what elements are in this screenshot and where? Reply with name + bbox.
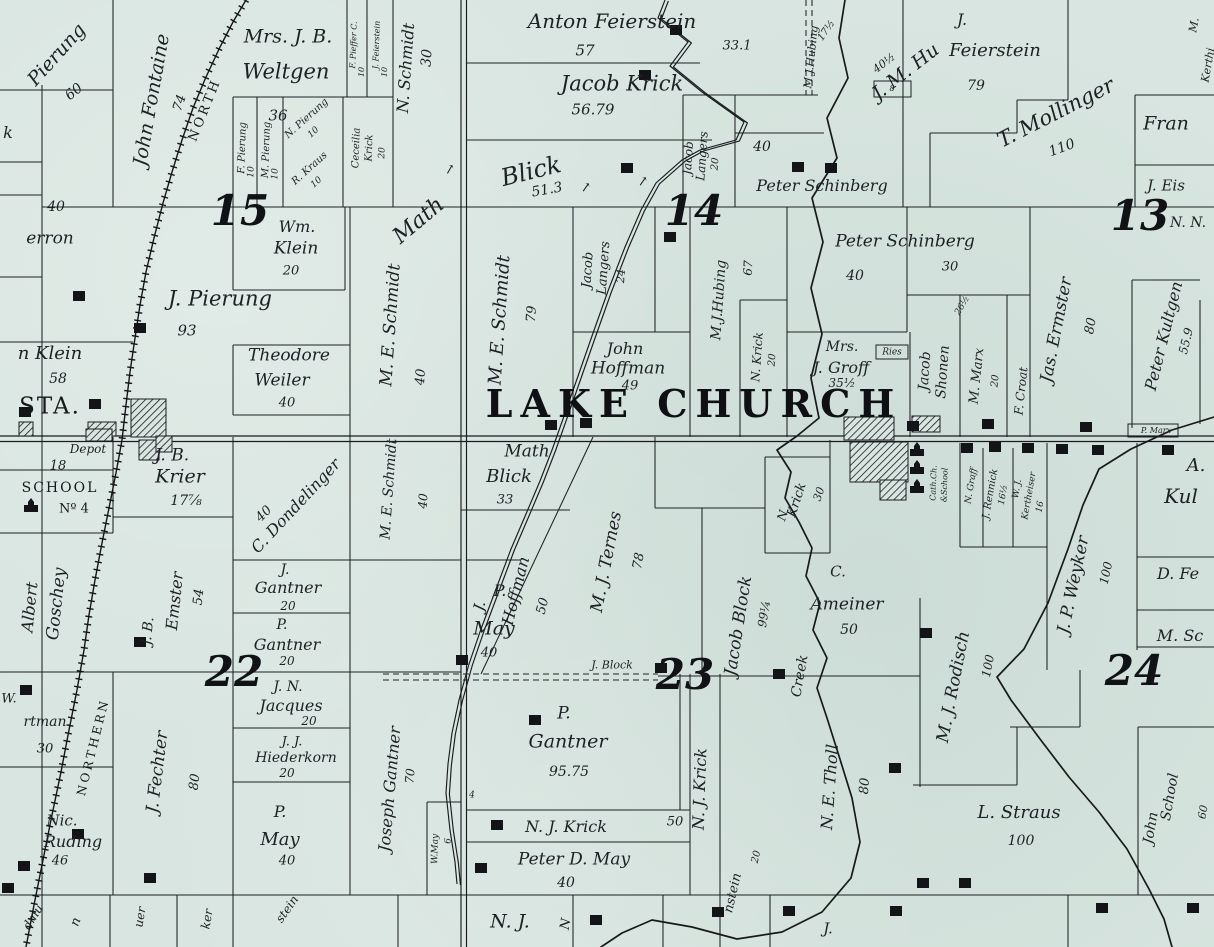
parcel-label: erron [26,231,74,248]
parcel-label: 67 [741,260,754,276]
parcel-label: T. Mollinger [994,75,1118,152]
section-number: 15 [211,190,269,232]
parcel-label: Ries [882,349,902,358]
parcel-label: John Fontaine [131,32,173,167]
map-canvas: Pierung60k40erronJohn Fontaine74NORTHMrs… [0,0,1214,947]
section-number: 13 [1111,195,1169,237]
parcel-label: Jas. Ermster [1038,276,1075,384]
parcel-label: ↗ [580,181,593,196]
parcel-label: 17⅞ [170,494,201,508]
parcel-label: 20 [751,850,764,865]
parcel-label: J. Block [591,660,633,671]
parcel-label: Mrs. [826,340,859,354]
parcel-label: P. Marx [1141,427,1171,435]
parcel-label: 100 [1098,561,1115,586]
parcel-label: 50 [667,816,684,829]
parcel-label: 26½ [954,295,972,317]
parcel-label: M. Marx [968,347,987,404]
parcel-label: Peter Schinberg [756,178,887,194]
parcel-label: 78 [631,552,647,571]
parcel-label: 60 [1196,804,1209,820]
parcel-label: N. E. Tholl [819,744,841,831]
parcel-label: 110 [1047,137,1077,159]
parcel-label: Math [504,444,549,461]
parcel-label: 40 [279,397,296,410]
parcel-label: Fran [1143,115,1189,134]
parcel-label: 58 [49,372,67,386]
parcel-label: Gantner [529,733,608,752]
place-name: LAKE CHURCH [486,385,902,423]
parcel-label: M. [1187,17,1200,33]
parcel-label: Gantner [255,580,321,596]
parcel-label: N. J. [490,913,530,932]
parcel-label: 100 [980,654,996,679]
section-number: 14 [665,190,723,232]
parcel-label: Depot [70,443,106,455]
parcel-label: N. Schmidt [395,22,417,113]
parcel-label: NORTHERN [75,697,111,797]
parcel-label: Cath.Ch. [929,465,938,501]
parcel-label: Peter Schinberg [835,234,975,251]
parcel-label: NORTH [186,77,223,144]
parcel-label: Krick [365,134,376,161]
parcel-label: 10 [381,67,389,77]
parcel-label: N. J. Krick [691,748,710,830]
parcel-label: Krick [785,481,808,519]
parcel-label: 30 [419,49,434,68]
parcel-label: 79 [967,79,985,93]
parcel-label: M. E. Schmidt [378,263,404,387]
section-number: 24 [1105,650,1163,692]
parcel-label: Ameiner [810,597,883,614]
parcel-label: Kul [1164,486,1198,506]
parcel-label: 20 [990,374,1001,388]
parcel-label: 20 [301,715,316,727]
parcel-label: 10 [247,166,256,178]
parcel-label: 20 [378,147,387,159]
parcel-label: 20 [279,655,294,667]
parcel-label: J. P. Weyker [1055,535,1092,636]
parcel-label: Shonen [934,345,952,399]
parcel-label: Weltgen [243,62,330,83]
parcel-label: 17½ [816,19,837,43]
parcel-label: n Klein [18,345,83,363]
parcel-label: 40 [416,493,429,509]
parcel-label: 10 [358,67,366,77]
parcel-label: 40 [753,140,771,154]
parcel-label: Hoffman [591,361,665,378]
parcel-label: 93 [177,324,196,339]
parcel-label: M. Sc [1157,628,1203,644]
parcel-label: 80 [1083,317,1099,336]
parcel-label: Ruding [44,834,102,850]
parcel-label: Jacob Block [723,575,756,677]
parcel-label: M. E. Schmidt [378,438,399,540]
parcel-label: J. [281,563,290,577]
parcel-label: Creek [789,654,810,698]
parcel-label: 40 [279,855,296,868]
parcel-label: M. E. Schmidt [486,255,513,386]
parcel-label: Hiederkorn [255,751,337,765]
parcel-label: N. Graff [964,467,979,504]
parcel-label: C. [830,565,846,580]
parcel-label: Goschey [45,567,70,641]
parcel-label: Math [389,194,448,249]
parcel-label: J. Fechter [145,730,172,814]
parcel-label: 24 [615,269,627,284]
parcel-label: n [68,916,83,928]
parcel-label: 30 [942,261,959,274]
parcel-label: J. B. [140,616,157,645]
parcel-label: N. Krick [749,332,764,383]
parcel-label: W. J. [1012,479,1024,499]
parcel-label: 51.3 [530,180,563,199]
parcel-label: W. [1,693,16,706]
parcel-label: M. J. Ternes [589,510,625,614]
parcel-label: 20 [280,600,295,612]
parcel-label: Kertheiser [1021,472,1038,521]
parcel-label: 80 [188,773,203,791]
parcel-label: 18 [50,460,67,473]
parcel-label: J. Pierung [168,289,272,310]
parcel-label: Emster [164,571,186,631]
parcel-label: Mrs. J. B. [244,28,333,47]
parcel-label: Theodore [248,348,330,365]
parcel-label: Hoffman [500,555,532,627]
parcel-label: 10 [310,176,325,190]
parcel-label: SCHOOL [22,481,99,495]
parcel-label: dmu [21,902,45,931]
parcel-label: 55.9 [1177,327,1195,356]
parcel-label: School [1159,772,1181,822]
parcel-label: 46 [52,855,69,868]
parcel-label: Ceceilia [351,128,362,169]
parcel-label: Jacques [259,698,322,714]
parcel-label: Kerthi [1200,47,1214,83]
parcel-label: Jacob Krick [561,74,683,95]
parcel-label: nstein [722,872,744,914]
parcel-label: J. [472,600,489,613]
parcel-label: J. N. [273,680,302,694]
parcel-label: Langers [596,241,613,295]
parcel-label: 79 [525,305,539,322]
parcel-label: 40 [414,368,428,385]
parcel-label: Nº 4 [59,503,89,516]
parcel-label: Peter D. May [518,852,630,869]
parcel-label: 6 [444,838,453,844]
plat-map-page: { "map": { "type": "historical-plat-map"… [0,0,1214,947]
parcel-label: P. [276,618,287,632]
parcel-label: 10 [307,126,322,140]
parcel-label: F. Croat [1013,366,1030,415]
parcel-label: N. J. Krick [525,819,607,835]
parcel-label: 40 [557,876,575,890]
parcel-label: Klein [274,241,319,258]
parcel-label: uer [132,906,147,928]
parcel-label: 30 [37,743,54,756]
parcel-label: 40 [47,200,65,214]
parcel-label: W.May [431,834,441,864]
parcel-label: 16½ [998,484,1010,505]
parcel-label: 70 [403,768,416,784]
parcel-label: 60 [63,81,86,103]
parcel-label: N [559,917,574,930]
parcel-label: Blick [486,468,532,486]
parcel-label: M.J.Hubing [709,259,729,340]
parcel-label: Feierstein [949,42,1041,60]
parcel-label: Wm. [279,219,316,235]
parcel-label: stein [274,893,301,924]
parcel-label: J. Groff [813,360,870,376]
parcel-label: 8 [889,85,894,93]
parcel-label: 100 [1008,834,1035,848]
parcel-label: ker [199,908,214,930]
parcel-label: 20 [283,265,300,278]
parcel-label: 10 [271,168,280,180]
parcel-label: 54 [192,588,207,606]
parcel-label: D. Fe [1157,566,1199,582]
parcel-label: &School [940,468,949,503]
parcel-label: 50 [535,596,552,615]
parcel-label: John [607,341,644,357]
parcel-label: Anton Feierstein [528,11,696,31]
parcel-label: STA. [19,396,81,419]
parcel-label: 57 [575,44,594,59]
section-number: 23 [656,654,714,696]
parcel-label: 50 [840,623,858,637]
map-labels: Pierung60k40erronJohn Fontaine74NORTHMrs… [0,0,1214,947]
parcel-label: J. [957,12,967,28]
parcel-label: May [260,831,299,849]
parcel-label: Jacob [580,251,596,288]
parcel-label: rtman [24,715,67,729]
parcel-label: Pierung [25,20,90,89]
parcel-label: 40 [846,269,864,283]
parcel-label: Gantner [254,637,320,653]
parcel-label: J. [823,922,833,937]
parcel-label: ↗ [637,175,650,190]
parcel-label: 20 [768,353,779,366]
parcel-label: Albert [19,581,40,633]
parcel-label: Langers [694,131,709,181]
parcel-label: Weiler [254,373,309,390]
parcel-label: 20 [279,767,294,779]
parcel-label: 95.75 [549,765,589,779]
parcel-label: J. J. [282,736,303,749]
parcel-label: Nic. [46,814,77,829]
parcel-label: 74 [171,93,188,113]
parcel-label: P. [274,804,287,820]
parcel-label: Krier [155,468,205,487]
parcel-label: 80 [858,777,872,794]
parcel-label: F. Pieffer C. [349,21,359,68]
parcel-label: 56.79 [572,103,615,118]
parcel-label: Jacob [917,351,934,391]
parcel-label: 30 [812,486,827,503]
parcel-label: 16 [1036,501,1047,514]
parcel-label: P. [557,706,570,723]
section-number: 22 [205,651,263,693]
parcel-label: 40 [481,647,498,660]
parcel-label: 33.1 [723,40,752,53]
parcel-label: J. B. [155,448,189,465]
parcel-label: 4 [469,792,475,801]
parcel-label: ↗ [443,162,457,177]
parcel-label: N. N. [1170,216,1206,230]
parcel-label: k [3,125,13,141]
parcel-label: M. J. Rodisch [935,630,973,744]
parcel-label: A. [1187,457,1206,475]
parcel-label: J. Feierstein [372,21,382,70]
parcel-label: 99¼ [756,600,772,628]
parcel-label: Joseph Gantner [377,726,404,853]
parcel-label: L. Straus [977,804,1060,822]
parcel-label: 20 [711,157,722,170]
parcel-label: 33 [497,494,514,507]
